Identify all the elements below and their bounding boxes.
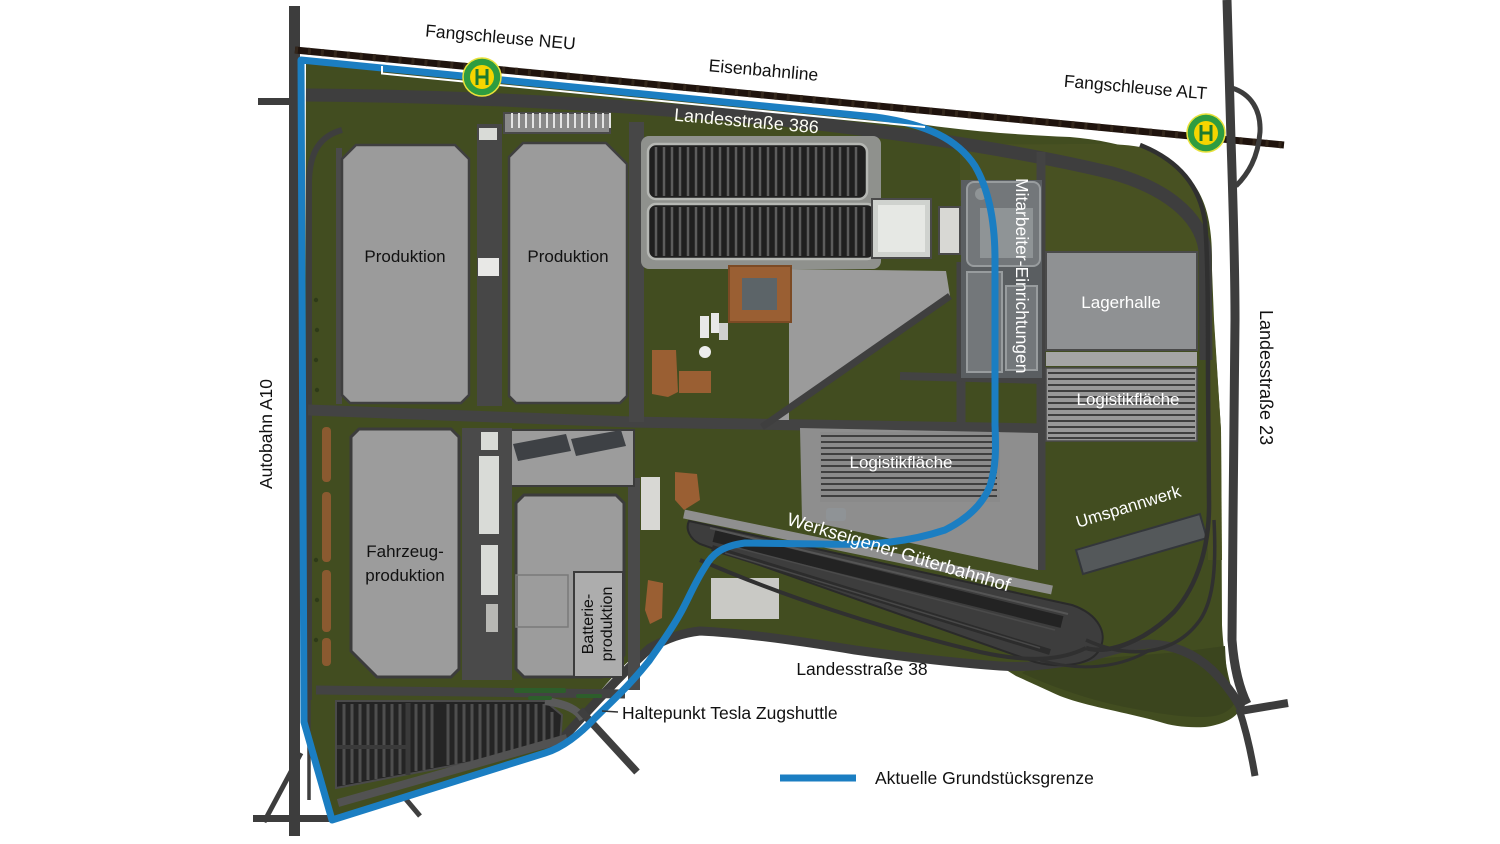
svg-text:Batterie-: Batterie- <box>580 594 597 654</box>
svg-text:Landesstraße 23: Landesstraße 23 <box>1256 310 1276 445</box>
svg-text:Fahrzeug-: Fahrzeug- <box>366 542 443 561</box>
svg-text:Logistikfläche: Logistikfläche <box>1076 390 1179 409</box>
svg-text:Aktuelle Grundstücksgrenze: Aktuelle Grundstücksgrenze <box>875 768 1094 788</box>
svg-text:Landesstraße 38: Landesstraße 38 <box>796 659 927 679</box>
svg-text:Mitarbeiter-Einrichtungen: Mitarbeiter-Einrichtungen <box>1012 178 1032 374</box>
svg-text:Produktion: Produktion <box>527 247 608 266</box>
svg-text:produktion: produktion <box>599 587 616 662</box>
svg-text:Logistikfläche: Logistikfläche <box>849 453 952 472</box>
svg-text:Haltepunkt Tesla Zugshuttle: Haltepunkt Tesla Zugshuttle <box>622 703 838 723</box>
svg-text:Produktion: Produktion <box>364 247 445 266</box>
svg-text:produktion: produktion <box>365 566 444 585</box>
svg-text:Autobahn A10: Autobahn A10 <box>256 379 276 489</box>
svg-text:Lagerhalle: Lagerhalle <box>1081 293 1160 312</box>
